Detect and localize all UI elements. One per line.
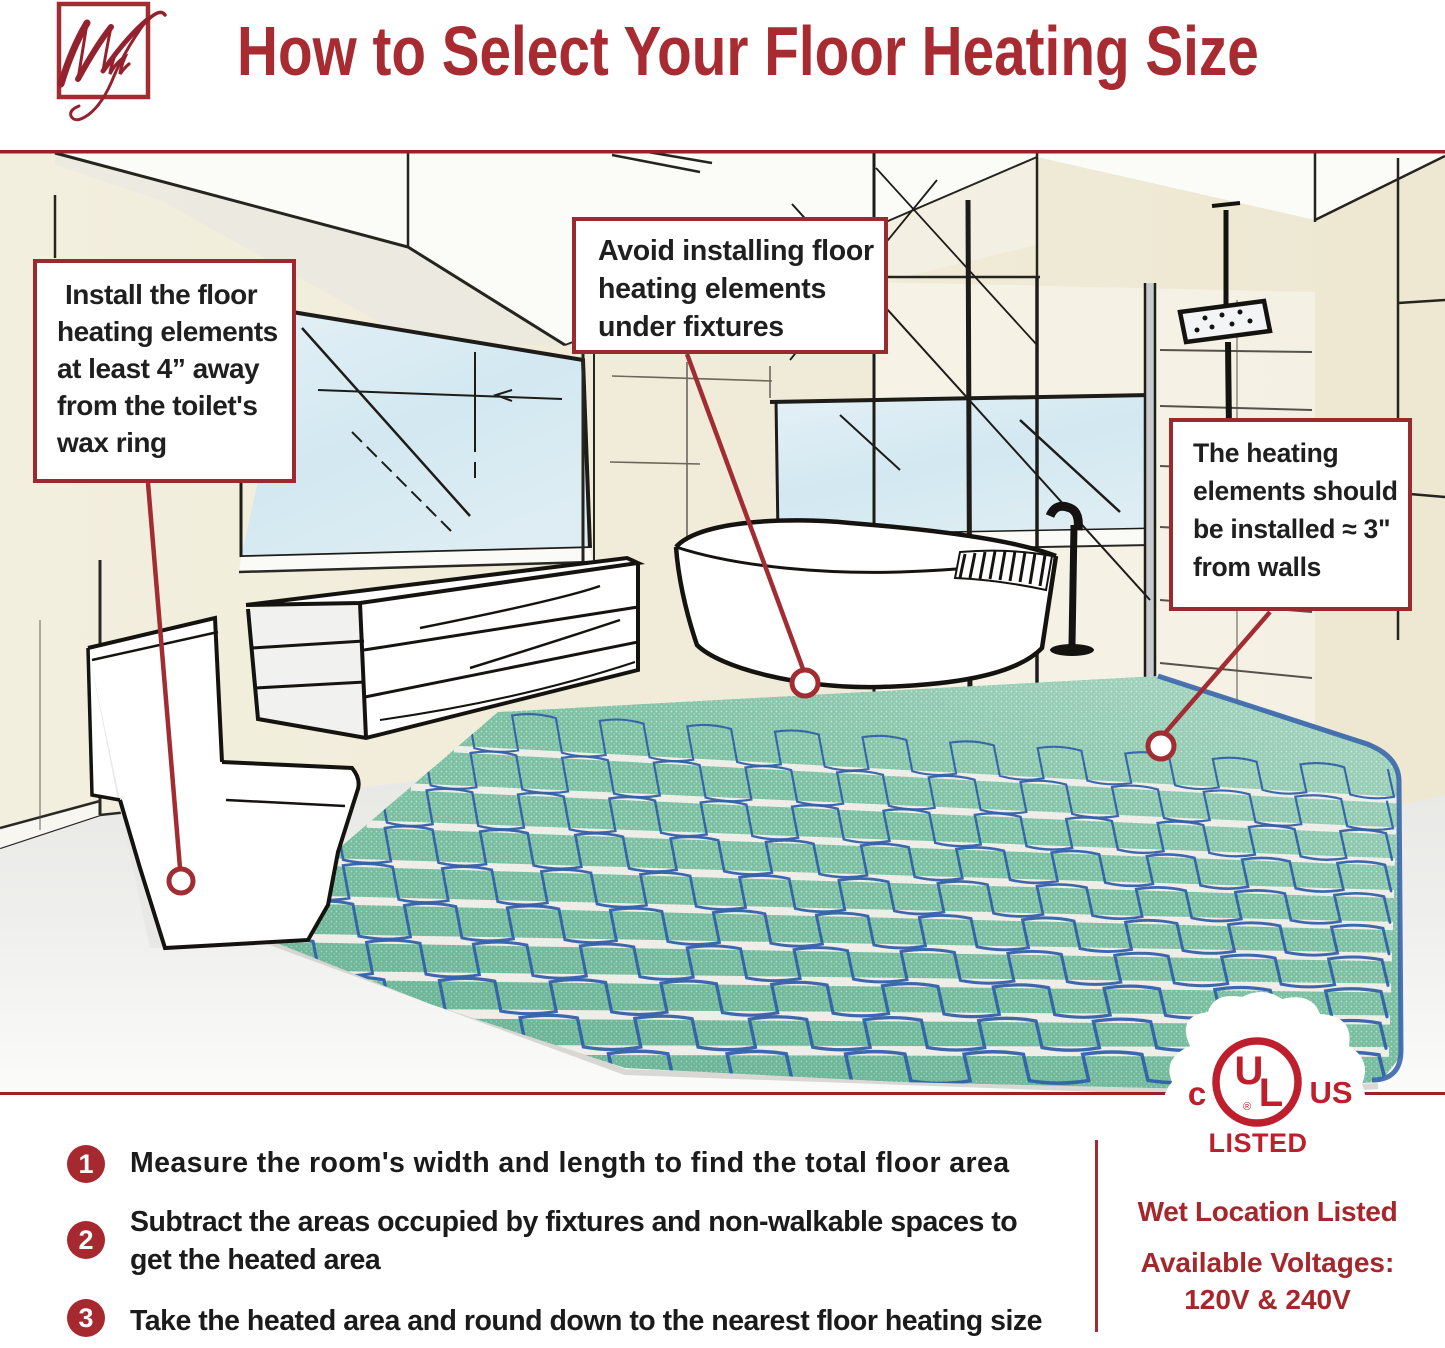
svg-text:LISTED: LISTED — [1208, 1128, 1307, 1158]
svg-text:US: US — [1309, 1075, 1352, 1110]
svg-text:®: ® — [1243, 1101, 1251, 1113]
svg-text:L: L — [1259, 1071, 1283, 1115]
svg-text:c: c — [1188, 1075, 1206, 1112]
